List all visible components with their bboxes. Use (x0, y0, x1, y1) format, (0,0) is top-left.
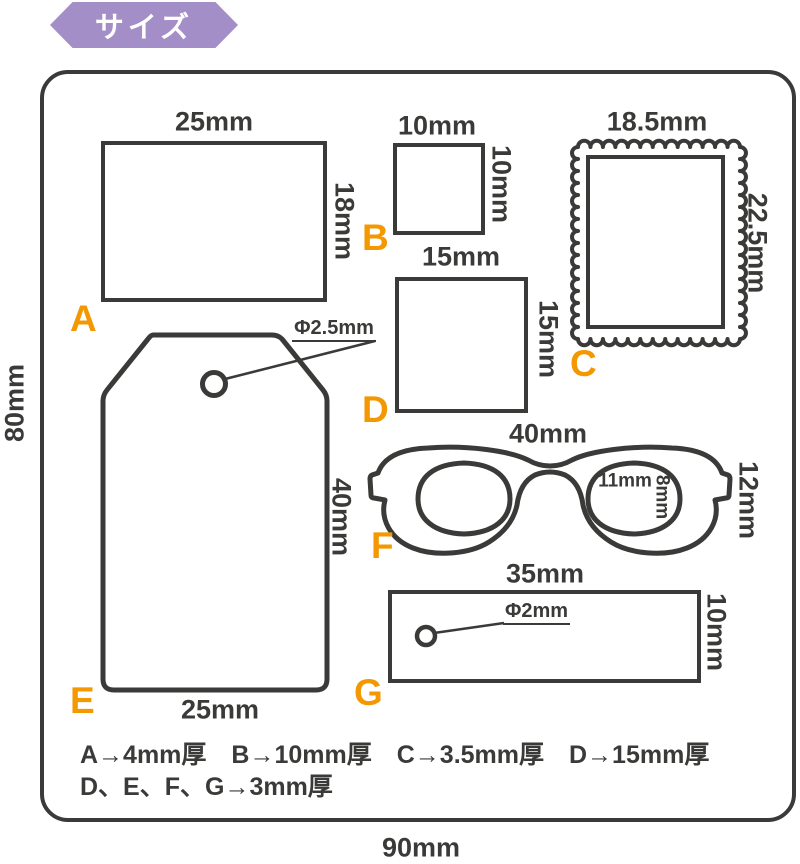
shape-b-letter: B (362, 219, 389, 256)
shape-g-hole-label: Φ2mm (503, 601, 570, 625)
shape-c-width-label: 18.5mm (607, 109, 708, 136)
shape-f-letter: F (371, 527, 394, 564)
overall-width-label: 90mm (382, 835, 460, 862)
size-badge: サイズ (50, 2, 238, 48)
shape-g-letter: G (354, 674, 383, 711)
shape-g-height-label: 10mm (703, 593, 730, 671)
shape-e-hole-label: Φ2.5mm (292, 318, 376, 342)
shape-f-lens-width-label: 11mm (598, 472, 652, 491)
overall-height-label: 80mm (2, 364, 29, 442)
shape-a-height-label: 18mm (331, 182, 358, 260)
shape-c-height-label: 22.5mm (744, 193, 771, 294)
shape-g-hole (417, 627, 435, 645)
thickness-note-line2: D、E、F、G→3mm厚 (80, 772, 333, 802)
shape-e-height-label: 40mm (328, 478, 355, 556)
shape-b-width-label: 10mm (398, 113, 476, 140)
shape-e-width-label: 25mm (181, 697, 259, 724)
shape-b-height-label: 10mm (488, 145, 515, 223)
shape-e-letter: E (70, 682, 95, 719)
shape-d-height-label: 15mm (535, 300, 562, 378)
shape-a-width-label: 25mm (175, 109, 253, 136)
shape-a-outline (101, 141, 327, 302)
shape-c-stamp-outline (572, 140, 746, 346)
shape-g-width-label: 35mm (506, 561, 584, 588)
thickness-note-line1: A→4mm厚 B→10mm厚 C→3.5mm厚 D→15mm厚 (80, 740, 709, 770)
size-badge-label: サイズ (95, 4, 193, 46)
shape-d-outline (395, 277, 528, 413)
shape-b-outline (393, 143, 485, 235)
shape-g-hole-leader-line (434, 623, 504, 633)
shape-f-lens-height-label: 8mm (653, 475, 672, 519)
shape-a-letter: A (70, 300, 97, 337)
shape-c-letter: C (570, 345, 597, 382)
shape-f-height-label: 12mm (735, 461, 762, 539)
shape-f-width-label: 40mm (509, 421, 587, 448)
shape-f-glasses-outline (368, 443, 732, 563)
shape-d-width-label: 15mm (422, 244, 500, 271)
